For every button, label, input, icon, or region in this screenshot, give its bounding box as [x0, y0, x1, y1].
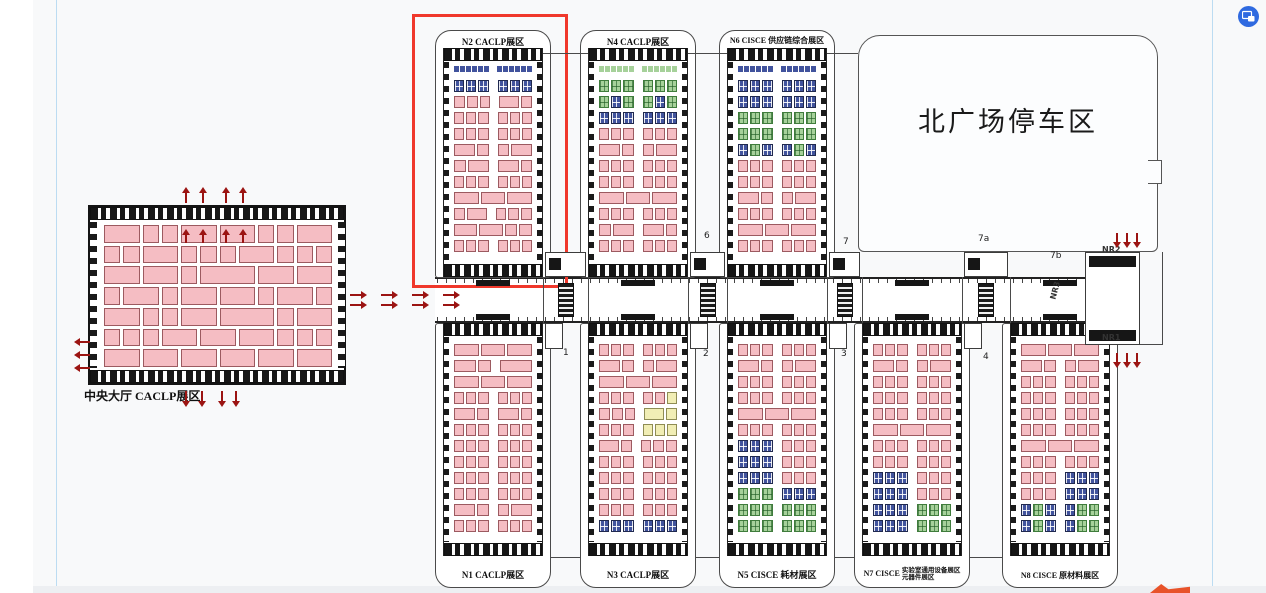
- booth: [599, 176, 609, 188]
- booth-row: [598, 440, 678, 452]
- booth-row: [1020, 392, 1100, 404]
- booth-row: [872, 408, 952, 420]
- booth: [510, 240, 520, 252]
- booth: [655, 112, 665, 124]
- booth: [1065, 520, 1075, 532]
- hall-aisle: [909, 376, 916, 388]
- hall-aisle: [1057, 424, 1064, 436]
- booth: [1033, 520, 1043, 532]
- booth-row: [453, 488, 533, 500]
- booth: [1033, 488, 1043, 500]
- hall-label-N5: N5 CISCE 耗材展区: [720, 568, 834, 581]
- booth: [510, 456, 520, 468]
- booth: [762, 392, 772, 404]
- booth: [498, 456, 508, 468]
- booth: [1078, 360, 1099, 372]
- booth: [162, 225, 178, 243]
- booth: [599, 424, 609, 436]
- booth: [498, 112, 508, 124]
- booth: [738, 424, 748, 436]
- booth: [667, 456, 677, 468]
- booth-row: [872, 440, 952, 452]
- corridor-wall: [1010, 277, 1011, 323]
- booth: [643, 456, 653, 468]
- booth: [738, 472, 748, 484]
- booth: [478, 128, 488, 140]
- hall-side-strip: [1011, 337, 1016, 542]
- booth: [123, 329, 139, 347]
- north-plaza-parking: [858, 35, 1158, 252]
- booth: [643, 80, 653, 92]
- booth: [793, 66, 798, 72]
- booth: [1021, 520, 1031, 532]
- hall-booths-N6: [737, 64, 817, 256]
- booth: [611, 208, 621, 220]
- junction-marker-3: 3: [841, 349, 847, 359]
- booth: [762, 66, 767, 72]
- booth: [782, 456, 792, 468]
- booth: [1021, 424, 1031, 436]
- booth: [496, 208, 507, 220]
- booth: [454, 440, 464, 452]
- booth: [623, 160, 633, 172]
- booth-row: [737, 208, 817, 220]
- hall-label-N4: N4 CACLP展区: [581, 35, 695, 48]
- booth-row: [1020, 424, 1100, 436]
- booth: [873, 488, 883, 500]
- junction-marker-4: 4: [983, 352, 989, 362]
- booth-row: [453, 80, 533, 92]
- booth: [1045, 392, 1055, 404]
- booth: [794, 80, 804, 92]
- booth: [200, 246, 216, 264]
- booth: [1074, 440, 1099, 452]
- hall-aisle: [490, 128, 497, 140]
- booth: [599, 112, 609, 124]
- hall-structure-band: [444, 48, 542, 61]
- booth: [794, 240, 804, 252]
- booth: [511, 144, 532, 156]
- booth: [941, 456, 951, 468]
- booth: [626, 192, 651, 204]
- hall-aisle: [774, 360, 781, 372]
- booth: [738, 66, 743, 72]
- booth: [738, 240, 748, 252]
- hall-aisle: [1057, 392, 1064, 404]
- hall-aisle: [1057, 520, 1064, 532]
- booth: [885, 408, 895, 420]
- hall-aisle: [909, 392, 916, 404]
- booth: [941, 440, 951, 452]
- booth: [941, 488, 951, 500]
- booth: [522, 112, 532, 124]
- booth: [1074, 344, 1099, 356]
- booth: [762, 472, 772, 484]
- booth: [505, 224, 518, 236]
- booth: [143, 225, 159, 243]
- booth: [643, 208, 653, 220]
- booth: [897, 392, 907, 404]
- booth: [454, 160, 466, 172]
- corridor-entrance-block: [760, 280, 794, 286]
- booth: [1021, 472, 1031, 484]
- central-hall-band: [90, 207, 344, 220]
- booth-row: [453, 360, 533, 372]
- booth: [277, 246, 293, 264]
- booth: [498, 392, 508, 404]
- booth: [467, 96, 478, 108]
- booth: [613, 224, 634, 236]
- corridor-entrance-block: [895, 280, 929, 286]
- booth-strip-row: [598, 66, 678, 72]
- booth: [762, 208, 772, 220]
- booth-row: [1020, 520, 1100, 532]
- hall-aisle: [490, 488, 497, 500]
- booth-row: [1020, 472, 1100, 484]
- booth: [1089, 456, 1099, 468]
- hall-structure-band: [589, 48, 687, 61]
- booth: [599, 224, 611, 236]
- booth: [1045, 424, 1055, 436]
- booth: [508, 208, 519, 220]
- booth: [466, 128, 476, 140]
- booth: [277, 225, 293, 243]
- booth: [794, 176, 804, 188]
- booth: [478, 488, 488, 500]
- junction-marker-2: 2: [703, 349, 709, 359]
- booth: [599, 504, 609, 516]
- booth: [1033, 376, 1043, 388]
- hall-side-strip: [863, 337, 868, 542]
- booth: [498, 472, 508, 484]
- junction-structure: [690, 323, 708, 349]
- booth-row: [453, 192, 533, 204]
- flow-arrow-right: [381, 294, 392, 296]
- booth: [791, 224, 816, 236]
- booth: [599, 376, 624, 388]
- booth: [478, 456, 488, 468]
- booth: [667, 176, 677, 188]
- booth: [654, 66, 659, 72]
- hall-aisle: [1057, 360, 1064, 372]
- booth: [806, 440, 816, 452]
- booth: [744, 66, 749, 72]
- booth-strip-group: [497, 66, 532, 72]
- booth: [762, 504, 772, 516]
- corridor-wall: [688, 277, 689, 323]
- booth: [738, 144, 748, 156]
- booth: [762, 240, 772, 252]
- hall-aisle: [774, 456, 781, 468]
- hall-body-N1: [443, 323, 543, 556]
- hall-aisle: [635, 472, 642, 484]
- booth: [794, 520, 804, 532]
- booth-row: [453, 208, 533, 220]
- booth: [1065, 376, 1075, 388]
- booth: [896, 360, 908, 372]
- booth: [643, 424, 653, 436]
- booth-row: [737, 224, 817, 236]
- booth: [761, 192, 773, 204]
- booth: [643, 96, 653, 108]
- booth: [738, 112, 748, 124]
- booth: [897, 488, 907, 500]
- booth-row: [1020, 408, 1100, 420]
- booth: [885, 376, 895, 388]
- booth: [782, 520, 792, 532]
- booth: [522, 520, 532, 532]
- booth: [1065, 504, 1075, 516]
- booth: [806, 472, 816, 484]
- exhibition-floor-plan: 中央大厅 CACLP展区 北广场停车区 N2 CACLP展区N4 CACLP展区…: [0, 0, 1266, 593]
- booth: [454, 488, 464, 500]
- booth: [666, 408, 677, 420]
- booth-row: [598, 408, 678, 420]
- booth: [782, 240, 792, 252]
- booth: [917, 392, 927, 404]
- booth: [143, 246, 179, 264]
- booth: [643, 224, 664, 236]
- corridor-entrance-block: [895, 314, 929, 320]
- junction-marker-7: 7: [843, 237, 849, 247]
- booth: [782, 424, 792, 436]
- booth: [162, 329, 198, 347]
- hall-structure-band: [589, 543, 687, 556]
- booth: [762, 456, 772, 468]
- booth: [738, 520, 748, 532]
- booth: [750, 80, 760, 92]
- stair-block: [558, 283, 574, 317]
- booth: [123, 246, 139, 264]
- hall-side-strip: [589, 337, 594, 542]
- floating-capture-icon[interactable]: [1238, 6, 1259, 27]
- booth: [454, 176, 464, 188]
- picture-in-picture-glyph: [1242, 10, 1255, 23]
- booth: [143, 349, 179, 367]
- hall-aisle: [909, 360, 916, 372]
- booth-row: [737, 392, 817, 404]
- booth: [655, 96, 665, 108]
- booth: [258, 225, 274, 243]
- booth-row: [872, 488, 952, 500]
- booth: [794, 456, 804, 468]
- booth: [510, 128, 520, 140]
- booth: [750, 160, 760, 172]
- booth: [220, 287, 256, 305]
- booth: [750, 208, 760, 220]
- booth: [794, 376, 804, 388]
- booth: [799, 66, 804, 72]
- booth: [897, 440, 907, 452]
- hall-aisle: [774, 240, 781, 252]
- booth: [794, 440, 804, 452]
- booth: [750, 424, 760, 436]
- hall-side-strip: [956, 337, 961, 542]
- booth: [806, 80, 816, 92]
- booth: [200, 266, 255, 284]
- booth: [599, 472, 609, 484]
- booth: [643, 160, 653, 172]
- booth: [762, 112, 772, 124]
- booth: [1065, 488, 1075, 500]
- corridor-wall: [588, 277, 589, 323]
- booth: [622, 360, 634, 372]
- stair-block: [978, 283, 994, 317]
- booth: [478, 66, 483, 72]
- booth: [643, 112, 653, 124]
- booth: [1077, 504, 1087, 516]
- hall-aisle: [774, 128, 781, 140]
- booth: [643, 488, 653, 500]
- booth: [478, 360, 490, 372]
- booth: [1089, 376, 1099, 388]
- booth: [477, 144, 489, 156]
- hall-aisle: [774, 192, 781, 204]
- booth: [897, 520, 907, 532]
- booth: [873, 504, 883, 516]
- booth: [521, 160, 533, 172]
- booth: [297, 225, 333, 243]
- booth: [454, 424, 464, 436]
- booth: [750, 456, 760, 468]
- booth: [885, 440, 895, 452]
- booth: [611, 424, 621, 436]
- booth: [258, 349, 294, 367]
- booth: [611, 504, 621, 516]
- hall-booths-N1: [453, 344, 533, 536]
- booth: [782, 504, 792, 516]
- booth: [200, 329, 236, 347]
- hall-structure-band: [728, 323, 826, 336]
- booth: [507, 376, 532, 388]
- booth: [806, 208, 816, 220]
- booth: [762, 488, 772, 500]
- booth: [762, 160, 772, 172]
- booth-row: [737, 424, 817, 436]
- junction-detail: [694, 258, 706, 270]
- hall-aisle: [490, 240, 497, 252]
- booth: [466, 456, 476, 468]
- hall-booths-N5: [737, 344, 817, 536]
- booth: [782, 80, 792, 92]
- booth: [750, 472, 760, 484]
- hall-aisle: [1057, 472, 1064, 484]
- booth: [672, 66, 677, 72]
- booth: [782, 488, 792, 500]
- booth: [297, 308, 333, 326]
- booth: [611, 66, 616, 72]
- flow-arrow-right: [443, 304, 454, 306]
- hall-aisle: [635, 424, 642, 436]
- booth: [885, 344, 895, 356]
- booth: [897, 504, 907, 516]
- booth: [667, 96, 677, 108]
- booth: [297, 266, 333, 284]
- hall-connector-line: [835, 557, 854, 558]
- booth-row: [737, 440, 817, 452]
- hall-booths-N3: [598, 344, 678, 536]
- booth: [782, 176, 792, 188]
- booth: [478, 240, 488, 252]
- booth: [667, 160, 677, 172]
- booth: [1077, 408, 1087, 420]
- booth: [466, 488, 476, 500]
- booth: [623, 128, 633, 140]
- booth: [667, 472, 677, 484]
- booth: [1045, 504, 1055, 516]
- hall-structure-band: [444, 264, 542, 277]
- booth: [1045, 456, 1055, 468]
- booth: [738, 488, 748, 500]
- booth: [509, 66, 514, 72]
- booth: [941, 344, 951, 356]
- booth: [522, 240, 532, 252]
- booth: [454, 360, 476, 372]
- hall-body-N4: [588, 48, 688, 277]
- booth: [623, 520, 633, 532]
- booth: [521, 208, 532, 220]
- booth: [666, 224, 678, 236]
- booth: [655, 128, 665, 140]
- booth: [795, 192, 816, 204]
- booth: [1077, 392, 1087, 404]
- booth: [104, 266, 140, 284]
- booth: [522, 456, 532, 468]
- booth-row: [453, 520, 533, 532]
- booth: [643, 240, 653, 252]
- hall-booths-N7: [872, 344, 952, 536]
- booth: [791, 408, 816, 420]
- booth: [738, 224, 763, 236]
- booth: [806, 128, 816, 140]
- flow-arrow-down: [1126, 353, 1128, 362]
- booth: [667, 504, 677, 516]
- booth: [454, 66, 459, 72]
- booth: [806, 504, 816, 516]
- booth: [655, 488, 665, 500]
- booth: [599, 208, 609, 220]
- booth-row: [598, 176, 678, 188]
- hall-structure-band: [863, 543, 961, 556]
- booth: [503, 66, 508, 72]
- booth-row: [598, 224, 678, 236]
- hall-aisle: [774, 520, 781, 532]
- booth-strip-group: [599, 66, 634, 72]
- booth: [782, 144, 792, 156]
- flow-arrow-up: [225, 235, 227, 243]
- booth: [917, 376, 927, 388]
- booth: [522, 488, 532, 500]
- booth: [930, 360, 951, 372]
- hall-aisle: [635, 112, 642, 124]
- booth: [806, 488, 816, 500]
- booth: [605, 66, 610, 72]
- hall-aisle: [774, 376, 781, 388]
- booth: [750, 504, 760, 516]
- booth-row: [453, 424, 533, 436]
- hall-aisle: [774, 96, 781, 108]
- booth: [644, 408, 664, 420]
- booth: [1089, 520, 1099, 532]
- booth: [454, 192, 479, 204]
- east-boundary-line: [1162, 252, 1163, 345]
- booth: [498, 408, 519, 420]
- booth: [941, 520, 951, 532]
- booth: [466, 392, 476, 404]
- booth: [510, 440, 520, 452]
- hall-body-N7: [862, 323, 962, 556]
- hall-aisle: [635, 504, 642, 516]
